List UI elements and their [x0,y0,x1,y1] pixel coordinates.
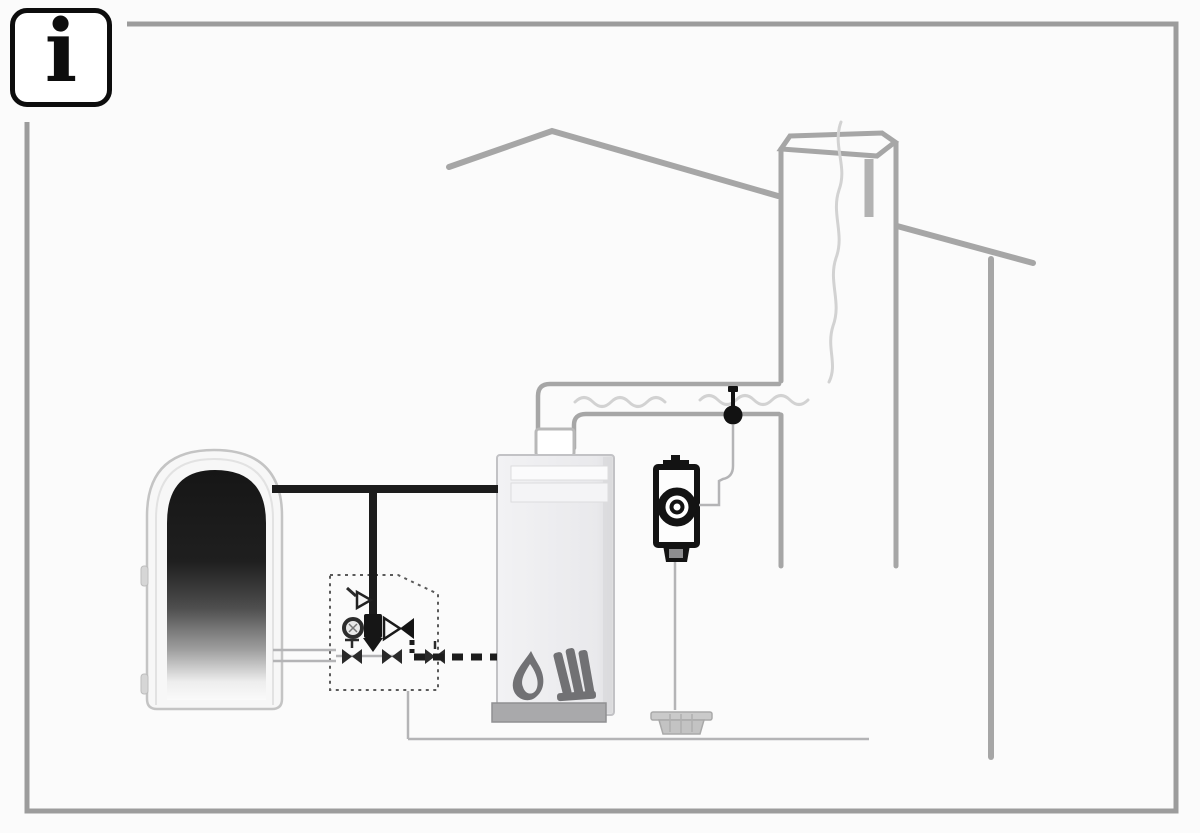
mixing-valve-right [400,618,414,639]
boiler-flue-collar [536,429,574,456]
riser-valve-lever [347,588,356,596]
flue-inner-line [574,414,779,448]
roof-ridge [449,131,778,196]
valve-outlet-tip [363,638,383,652]
boiler-plinth [492,703,606,722]
sensor-capillary-line [699,425,733,505]
roof-right-slope [897,226,1033,263]
pump-connector-plate [669,549,683,558]
dashed-flow-line [412,640,497,657]
smoke-lines [575,122,842,407]
flue-smoke-wave-left [575,398,665,407]
boiler-control-panel-bottom [511,483,608,502]
tank-water-stratification [167,470,266,700]
figure: i [0,0,1200,833]
chimney-smoke-wave [829,122,842,382]
floor-drain [651,712,712,734]
mixing-valve-left [384,618,400,639]
riser-valve [357,592,371,608]
valve-body [364,614,382,638]
boiler-control-panel-top [511,466,608,480]
info-glyph: i [45,9,78,95]
storage-tank [141,450,282,709]
valve-group [342,588,445,664]
tank-fitting-upper [141,566,148,586]
schematic-canvas [0,0,1200,833]
pump-hub-center [674,504,681,511]
shutoff-valves [342,640,445,664]
drain-piping [408,691,869,739]
flue-smoke-wave-right [700,396,808,405]
thermal-discharge-pump [656,455,697,710]
info-badge: i [10,8,112,107]
tank-return-lines [273,650,400,661]
tank-fitting-lower [141,674,148,694]
supply-pipes [272,489,498,616]
sensor-bulb [724,406,743,425]
boiler [492,455,614,722]
